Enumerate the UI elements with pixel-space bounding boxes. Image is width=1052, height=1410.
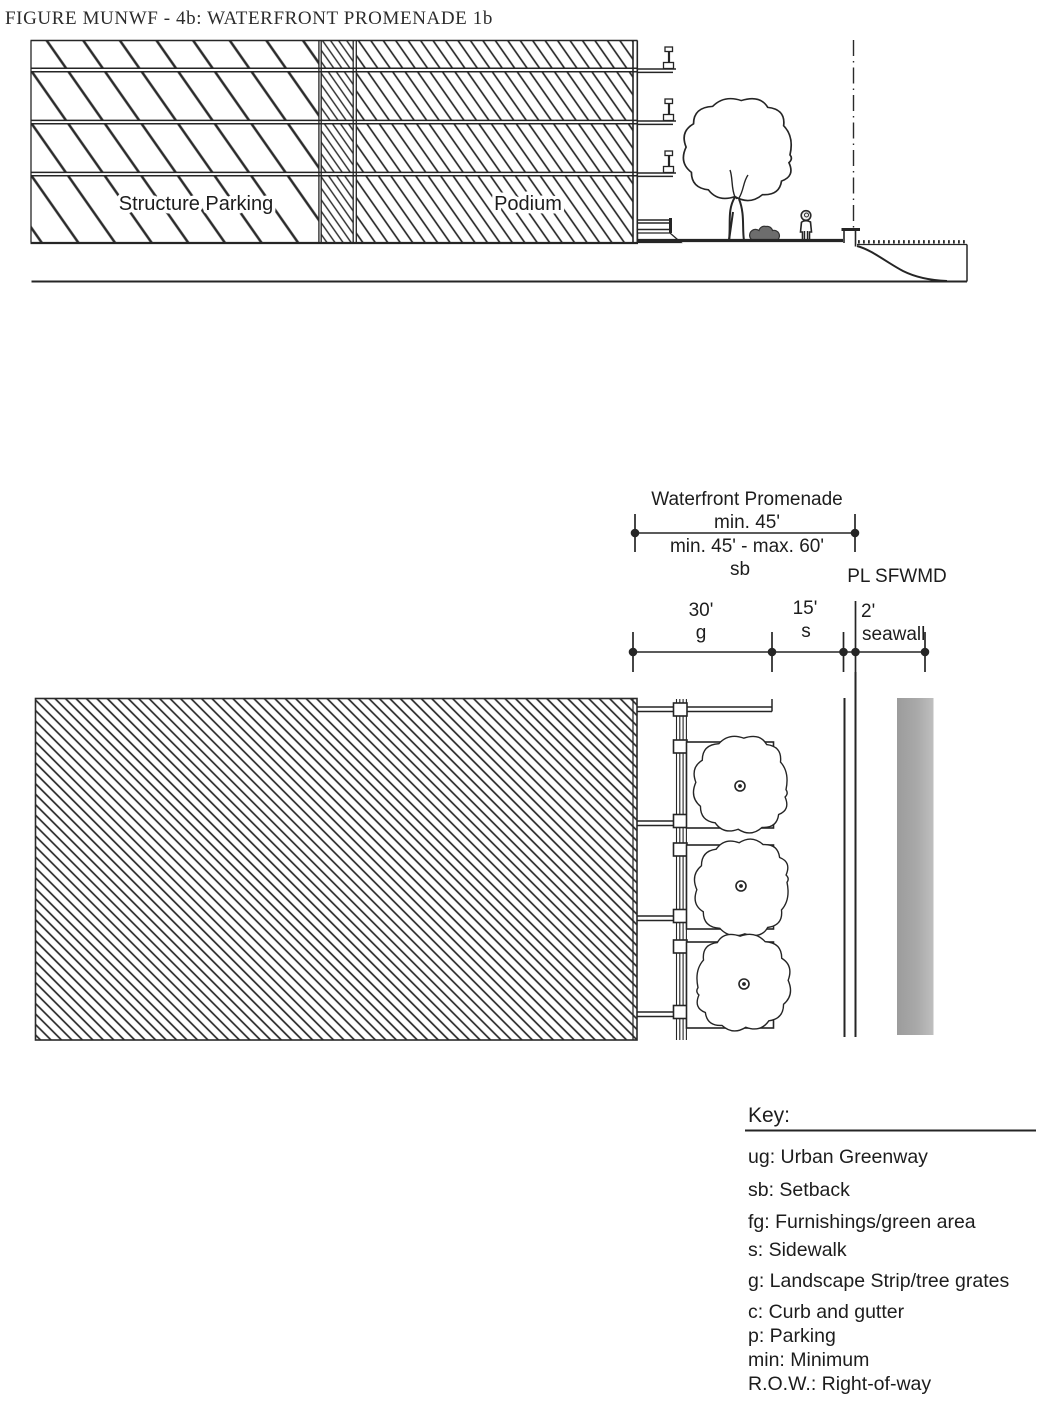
key-entry: sb: Setback bbox=[748, 1179, 850, 1201]
key-entry: g: Landscape Strip/tree grates bbox=[748, 1270, 1009, 1292]
segment-seawall-value: 2' bbox=[861, 601, 875, 622]
person-icon bbox=[801, 211, 812, 240]
balconies bbox=[638, 47, 682, 243]
dimension-promenade: Waterfront Promenade min. 45' min. 45' -… bbox=[631, 489, 947, 587]
segment-s-code: s bbox=[801, 621, 811, 642]
key-entry: R.O.W.: Right-of-way bbox=[748, 1373, 931, 1395]
dimension-segments: 30' g 15' s 2' seawall bbox=[629, 598, 930, 672]
figure-page: FIGURE MUNWF - 4b: WATERFRONT PROMENADE … bbox=[0, 0, 1052, 1410]
key-entry: p: Parking bbox=[748, 1325, 836, 1347]
key-entry: s: Sidewalk bbox=[748, 1239, 847, 1261]
water-strip bbox=[897, 698, 934, 1035]
key-heading: Key: bbox=[748, 1104, 790, 1127]
figure-drawing: FIGURE MUNWF - 4b: WATERFRONT PROMENADE … bbox=[0, 0, 1052, 1410]
promenade-title: Waterfront Promenade bbox=[651, 489, 843, 510]
pl-sfwmd-label: PL SFWMD bbox=[847, 566, 947, 587]
key-entry: c: Curb and gutter bbox=[748, 1301, 905, 1323]
figure-title: FIGURE MUNWF - 4b: WATERFRONT PROMENADE … bbox=[5, 8, 493, 29]
building-section: Structure Parking Podium bbox=[31, 40, 968, 282]
promenade-code: sb bbox=[730, 559, 750, 580]
promenade-min: min. 45' bbox=[714, 512, 780, 533]
promenade-range: min. 45' - max. 60' bbox=[670, 536, 824, 557]
bush-icon bbox=[750, 226, 780, 240]
tree-grate bbox=[687, 839, 789, 936]
structure-parking-label: Structure Parking bbox=[119, 193, 274, 215]
key-legend: Key: ug: Urban Greenway sb: Setback fg: … bbox=[745, 1104, 1036, 1395]
segment-s-value: 15' bbox=[793, 598, 818, 619]
shoreline bbox=[32, 242, 968, 282]
seawall-plan bbox=[845, 672, 856, 1037]
key-entry: ug: Urban Greenway bbox=[748, 1146, 928, 1168]
core-strip-area bbox=[322, 41, 354, 243]
tree-grate bbox=[687, 736, 788, 833]
plan-view bbox=[36, 672, 934, 1040]
key-entry: min: Minimum bbox=[748, 1349, 869, 1371]
key-entry: fg: Furnishings/green area bbox=[748, 1211, 976, 1233]
segment-g-value: 30' bbox=[689, 600, 714, 621]
podium-label: Podium bbox=[494, 193, 562, 215]
tree-grate bbox=[687, 934, 791, 1031]
segment-g-code: g bbox=[696, 623, 707, 644]
building-plan-area bbox=[36, 699, 638, 1041]
shoreline-curve bbox=[857, 246, 947, 281]
segment-seawall-code: seawall bbox=[862, 624, 925, 645]
tree-elevation-icon bbox=[683, 99, 791, 241]
